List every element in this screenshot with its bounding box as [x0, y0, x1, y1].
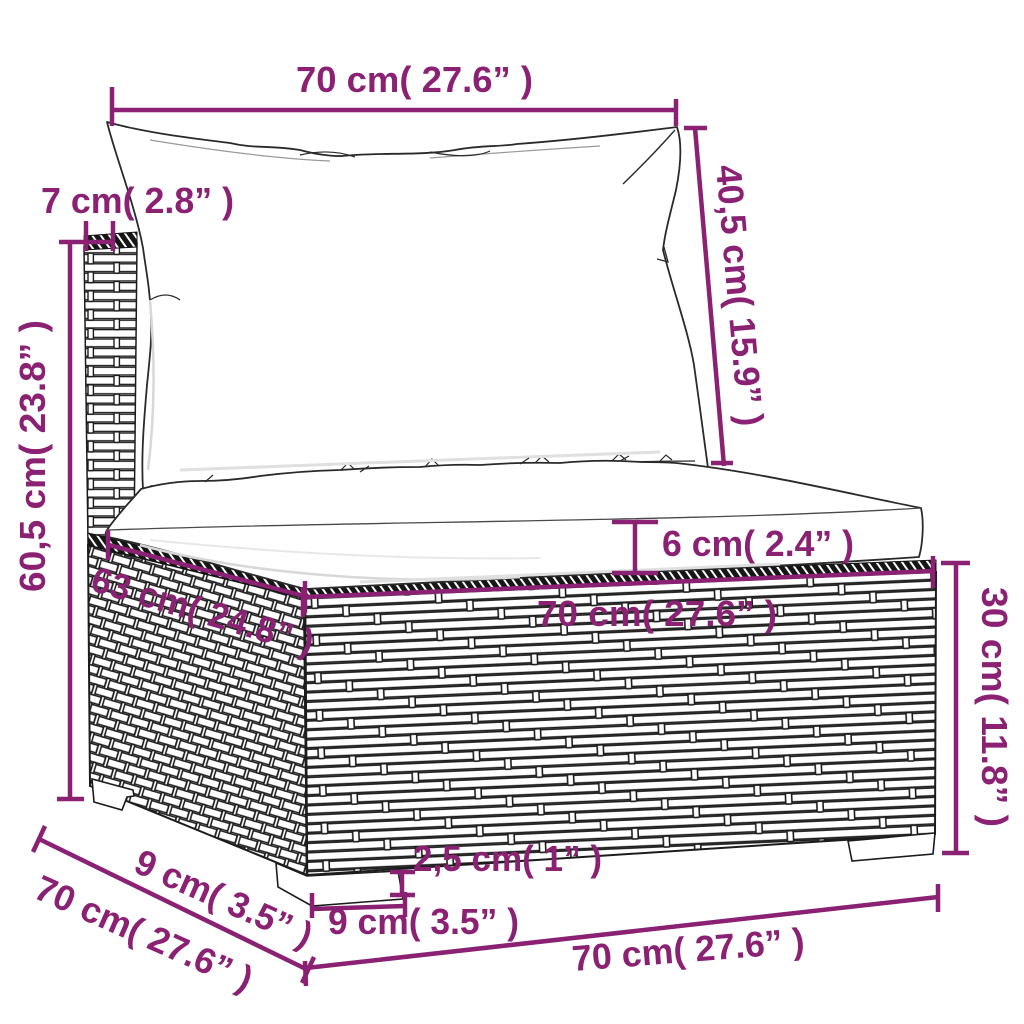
svg-text:70 cm( 27.6” ): 70 cm( 27.6” ): [296, 59, 533, 100]
svg-text:60,5 cm( 23.8” ): 60,5 cm( 23.8” ): [12, 320, 53, 592]
svg-text:2,5 cm( 1” ): 2,5 cm( 1” ): [413, 838, 602, 879]
svg-text:70 cm( 27.6” ): 70 cm( 27.6” ): [537, 593, 777, 634]
svg-text:6 cm( 2.4” ): 6 cm( 2.4” ): [662, 523, 854, 564]
svg-text:7 cm( 2.8” ): 7 cm( 2.8” ): [41, 180, 234, 221]
svg-text:9 cm( 3.5” ): 9 cm( 3.5” ): [328, 901, 519, 942]
svg-text:30 cm( 11.8” ): 30 cm( 11.8” ): [974, 587, 1015, 827]
